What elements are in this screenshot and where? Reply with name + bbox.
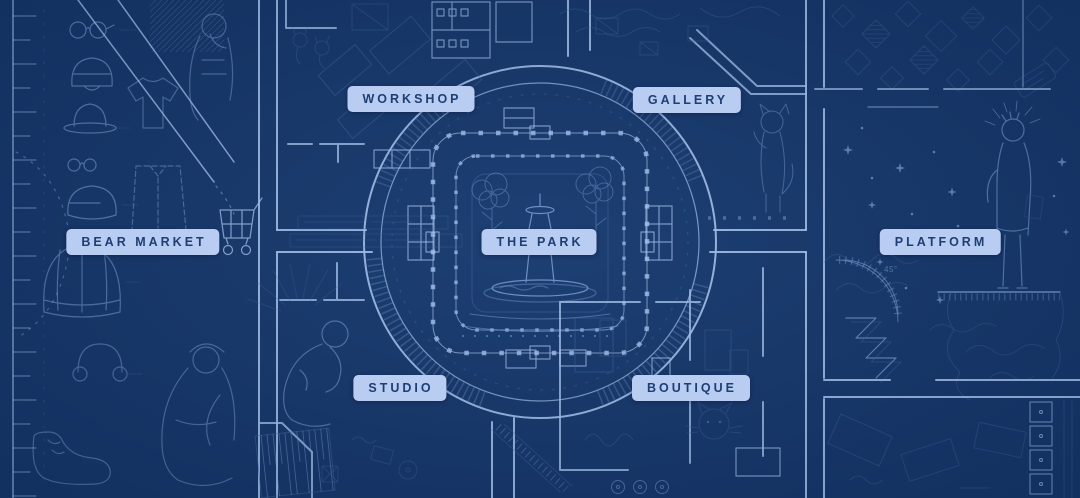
desk-sketch [318, 16, 481, 138]
district-label-platform[interactable]: PLATFORM [880, 229, 1001, 255]
hatch-block [150, 0, 224, 52]
round-glasses-icon [68, 159, 96, 171]
cat-sketch [293, 28, 329, 68]
locker-strip [1030, 402, 1052, 494]
dotted-arc [16, 152, 70, 336]
fedora-hat-icon [64, 104, 116, 133]
cliff-sketch [938, 292, 1063, 400]
district-label-studio[interactable]: STUDIO [353, 375, 446, 401]
motorcycle-helmet-icon [68, 186, 116, 219]
plans-sketch [828, 414, 1026, 488]
diamond-tiles [832, 1, 1069, 98]
aviator-helmet-icon [72, 58, 112, 90]
sunburst-sketch [248, 264, 342, 311]
counter [736, 448, 780, 476]
blueprint-map: 45° BEAR MARKET WORKSHOP GALLERY THE PAR… [0, 0, 1080, 498]
cat-figure-sketch [754, 104, 793, 212]
upper-divider-road-2 [868, 0, 1023, 107]
hooded-figure-sketch [162, 344, 235, 486]
contour-squiggles [560, 7, 780, 37]
clutter-sketch [322, 437, 417, 482]
platform-road [824, 380, 1080, 397]
piano-icon [255, 428, 335, 497]
storage-room [432, 2, 532, 58]
tshirt-icon [128, 78, 178, 128]
standing-figure-sketch [985, 101, 1043, 288]
east-road [710, 230, 806, 252]
stairs-icon [846, 318, 901, 382]
district-label-boutique[interactable]: BOUTIQUE [632, 375, 750, 401]
ruler-ticks [13, 16, 36, 496]
gallery-connector-road [690, 30, 806, 94]
district-label-gallery[interactable]: GALLERY [633, 87, 741, 113]
park-steps [462, 314, 618, 332]
boot-icon [33, 432, 110, 484]
west-road [277, 230, 372, 252]
display-circles [612, 481, 669, 494]
district-label-workshop[interactable]: WORKSHOP [348, 86, 475, 112]
working-figure-sketch [284, 321, 348, 426]
district-label-the-park[interactable]: THE PARK [482, 229, 597, 255]
conveyor-hatch [498, 427, 566, 489]
shopping-cart-icon [220, 198, 262, 255]
picture-frames-sketch [596, 18, 708, 55]
smoke-contours [824, 253, 1044, 380]
angle-annotation: 45° [884, 265, 898, 274]
shirt-icon [132, 166, 186, 230]
picture-frame-sketch [352, 4, 388, 30]
eyeglasses-icon [70, 22, 114, 38]
district-label-bear-market[interactable]: BEAR MARKET [66, 229, 219, 255]
headphones-icon [73, 344, 127, 381]
edge-lines [1064, 400, 1072, 498]
shelf-sketch [575, 318, 613, 372]
right-vertical-road [806, 0, 824, 498]
cat-face-icon [686, 402, 742, 439]
